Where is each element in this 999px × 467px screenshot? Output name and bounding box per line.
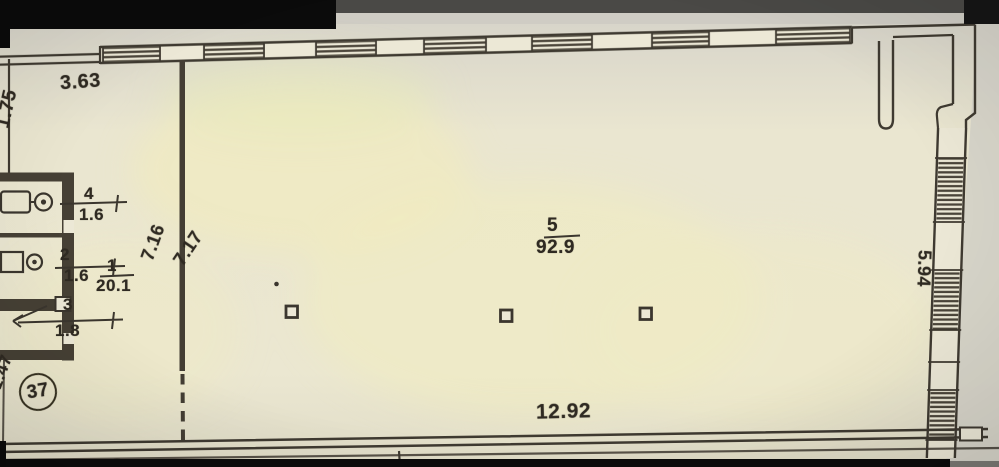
room-4-area-label: 1.6 [79,205,104,225]
room-3-number-label: 3 [63,295,73,315]
room-2-area-label: 1.6 [64,266,89,286]
room-5-area-label: 92.9 [536,237,575,259]
room-1-number-label: 1 [107,256,117,276]
room-1-area-label: 20.1 [96,276,131,296]
dim-right-height: 5.94 [912,250,934,288]
dim-top-left-width: 3.63 [59,70,101,96]
room-3-area-label: 1.8 [55,321,80,341]
room-4-number-label: 4 [84,184,94,204]
room-5-number-label: 5 [547,215,558,237]
floor-plan-scan: 3.63 1.75 7.16 7.17 5.94 12.92 1.47 5 92… [0,0,999,467]
dim-hall-bottom-width: 12.92 [536,399,592,424]
unit-number-label: 37 [25,379,50,404]
room-2-number-label: 2 [60,245,70,265]
